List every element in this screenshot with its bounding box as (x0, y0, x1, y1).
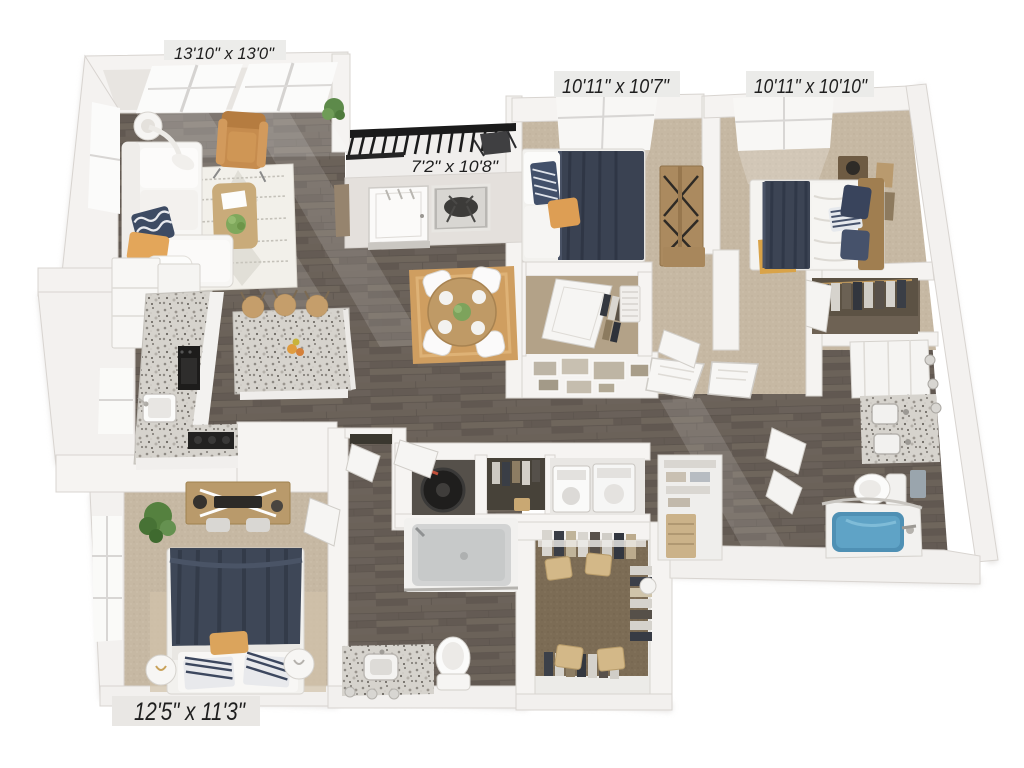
svg-text:12'5" x 11'3": 12'5" x 11'3" (134, 698, 246, 726)
svg-text:7'2" x 10'8": 7'2" x 10'8" (411, 157, 499, 176)
svg-text:10'11" x 10'10": 10'11" x 10'10" (754, 76, 868, 98)
svg-text:10'11" x 10'7": 10'11" x 10'7" (562, 76, 670, 98)
svg-text:13'10" x 13'0": 13'10" x 13'0" (174, 44, 275, 63)
